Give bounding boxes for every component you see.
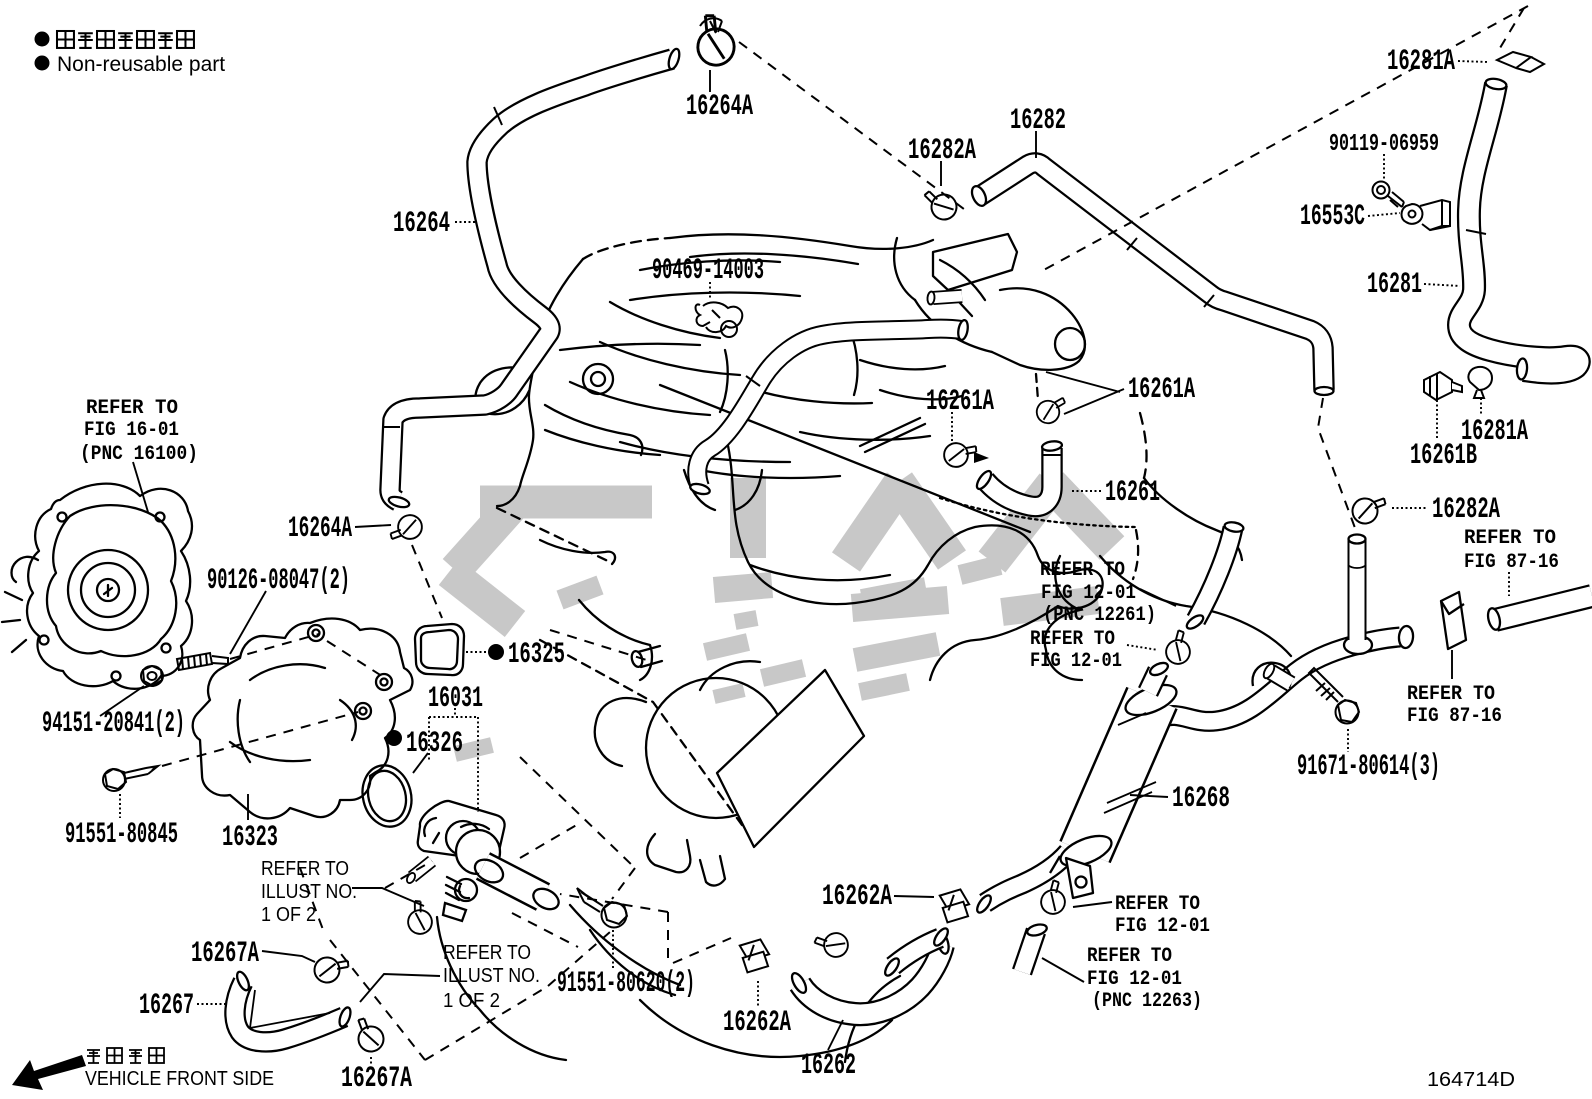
svg-text:Non-reusable part: Non-reusable part	[57, 53, 225, 76]
svg-text:16261: 16261	[1105, 475, 1160, 509]
svg-text:16268: 16268	[1172, 781, 1230, 815]
svg-text:91551-80845: 91551-80845	[65, 817, 178, 851]
svg-text:16267A: 16267A	[341, 1061, 412, 1095]
svg-text:FIG 12-01: FIG 12-01	[1030, 650, 1122, 673]
svg-text:16264: 16264	[393, 206, 450, 240]
svg-text:FIG 16-01: FIG 16-01	[84, 419, 179, 442]
svg-text:REFER TO: REFER TO	[1087, 945, 1172, 968]
svg-text:16281: 16281	[1367, 267, 1422, 301]
svg-text:16261B: 16261B	[1410, 438, 1477, 472]
svg-text:90469-14003: 90469-14003	[652, 253, 764, 287]
svg-text:REFER TO: REFER TO	[1040, 559, 1125, 582]
svg-text:REFER TO: REFER TO	[261, 858, 349, 880]
svg-text:REFER TO: REFER TO	[1407, 683, 1495, 706]
svg-text:16267: 16267	[139, 988, 194, 1022]
svg-text:16262A: 16262A	[723, 1005, 791, 1039]
svg-text:1 OF 2: 1 OF 2	[261, 904, 316, 926]
svg-text:16325: 16325	[508, 637, 565, 671]
svg-text:164714D: 164714D	[1427, 1069, 1515, 1091]
svg-text:90119-06959: 90119-06959	[1329, 131, 1439, 158]
svg-text:ILLUST NO.: ILLUST NO.	[443, 965, 540, 987]
svg-text:(PNC 12261): (PNC 12261)	[1043, 604, 1156, 627]
svg-text:FIG 87-16: FIG 87-16	[1407, 705, 1502, 728]
svg-text:REFER TO: REFER TO	[443, 942, 531, 964]
svg-text:1 OF 2: 1 OF 2	[443, 990, 500, 1012]
svg-text:16262: 16262	[801, 1048, 856, 1082]
svg-text:VEHICLE FRONT SIDE: VEHICLE FRONT SIDE	[85, 1068, 274, 1090]
svg-text:FIG 12-01: FIG 12-01	[1041, 582, 1136, 605]
svg-text:ILLUST NO.: ILLUST NO.	[261, 881, 357, 903]
svg-text:16261A: 16261A	[1128, 372, 1195, 406]
svg-text:16264A: 16264A	[288, 511, 352, 545]
svg-text:FIG 12-01: FIG 12-01	[1115, 915, 1210, 938]
svg-text:90126-08047(2): 90126-08047(2)	[207, 563, 350, 597]
svg-text:FIG 87-16: FIG 87-16	[1464, 551, 1559, 574]
svg-text:16553C: 16553C	[1300, 199, 1365, 233]
svg-text:(PNC 12263): (PNC 12263)	[1092, 990, 1202, 1013]
svg-text:16326: 16326	[406, 726, 463, 760]
svg-text:91671-80614(3): 91671-80614(3)	[1297, 749, 1440, 783]
svg-text:16267A: 16267A	[191, 936, 259, 970]
svg-text:94151-20841(2): 94151-20841(2)	[42, 706, 185, 740]
svg-text:16264A: 16264A	[686, 89, 753, 123]
svg-text:16282A: 16282A	[1432, 492, 1500, 526]
svg-text:91551-80620(2): 91551-80620(2)	[557, 966, 695, 1000]
svg-text:REFER TO: REFER TO	[1030, 628, 1115, 651]
svg-text:16281A: 16281A	[1387, 44, 1455, 78]
svg-text:FIG 12-01: FIG 12-01	[1087, 968, 1182, 991]
svg-text:16282: 16282	[1010, 103, 1066, 137]
svg-text:REFER TO: REFER TO	[1464, 527, 1556, 550]
svg-text:16262A: 16262A	[822, 879, 892, 913]
svg-text:16031: 16031	[428, 681, 483, 715]
svg-text:REFER TO: REFER TO	[1115, 893, 1200, 916]
svg-text:(PNC 16100): (PNC 16100)	[80, 443, 198, 466]
svg-text:16282A: 16282A	[908, 133, 976, 167]
svg-text:16323: 16323	[222, 820, 278, 854]
svg-text:16261A: 16261A	[926, 384, 994, 418]
svg-text:REFER TO: REFER TO	[86, 397, 178, 420]
